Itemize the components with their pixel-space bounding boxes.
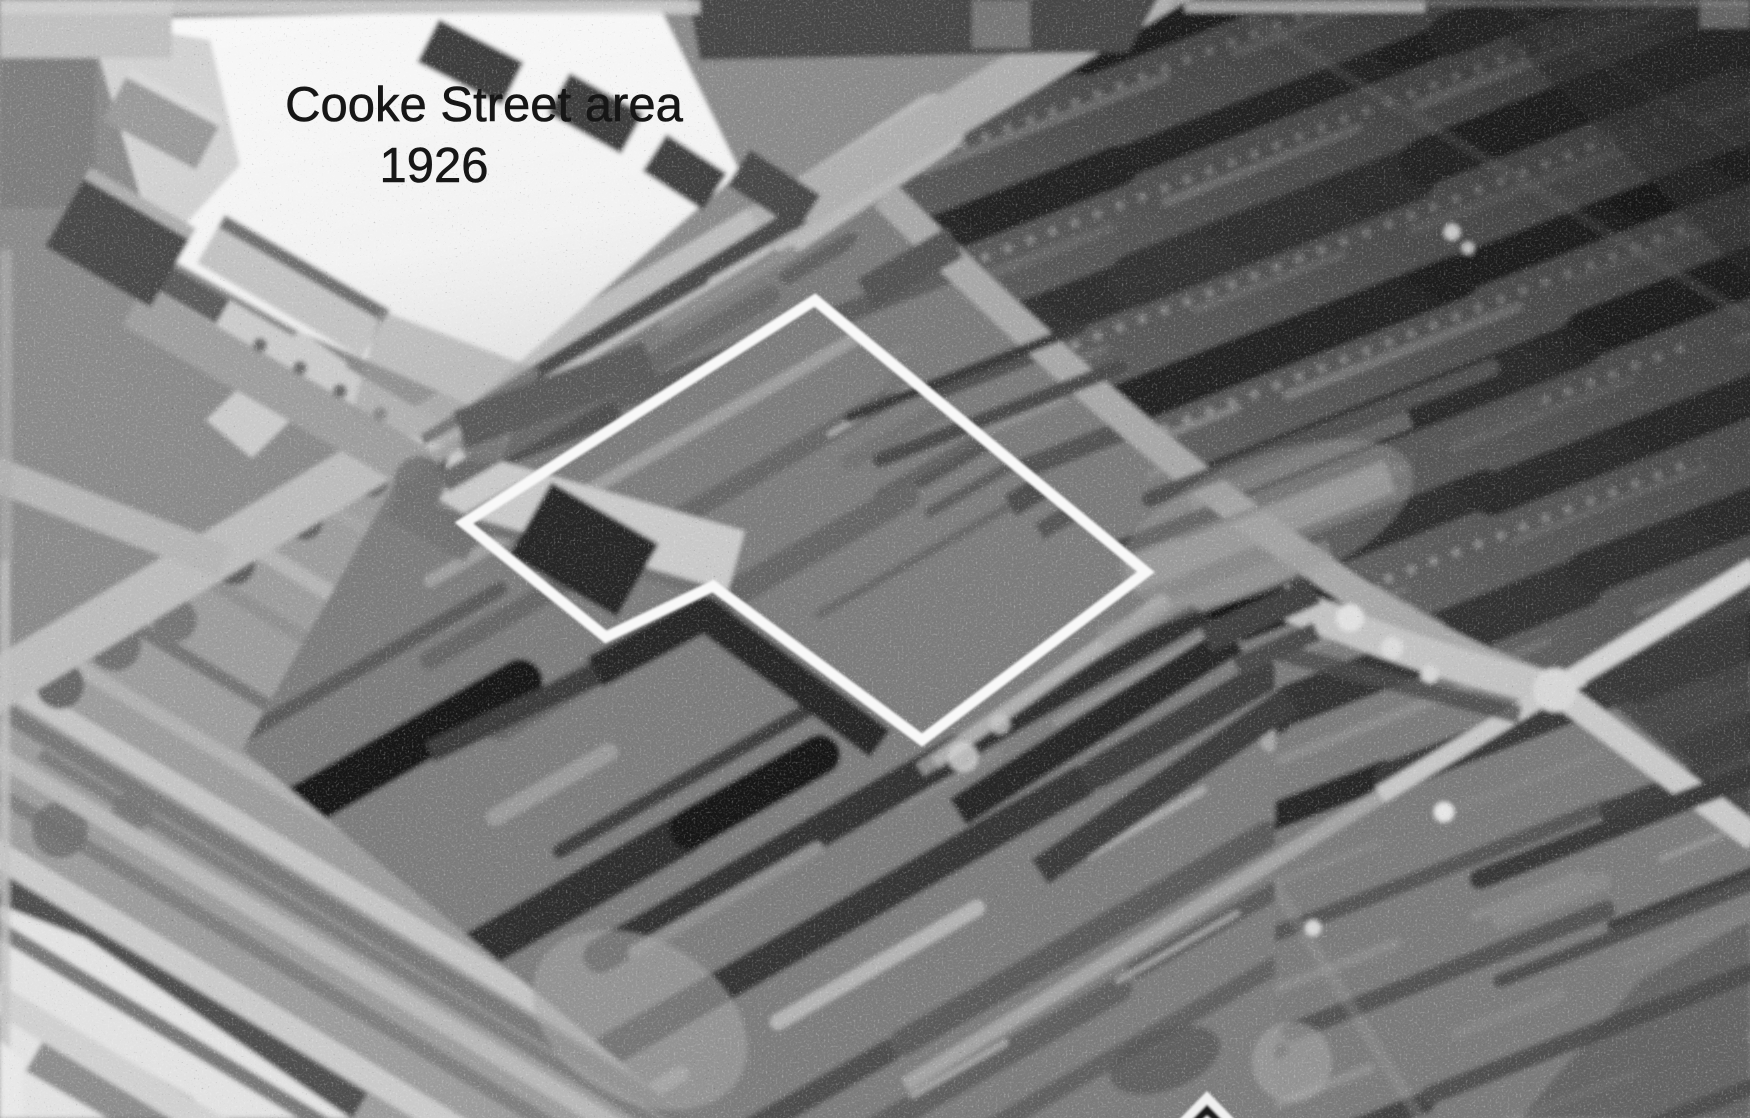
svg-text:Cooke Street area: Cooke Street area <box>285 78 683 132</box>
svg-text:1926: 1926 <box>379 139 488 193</box>
